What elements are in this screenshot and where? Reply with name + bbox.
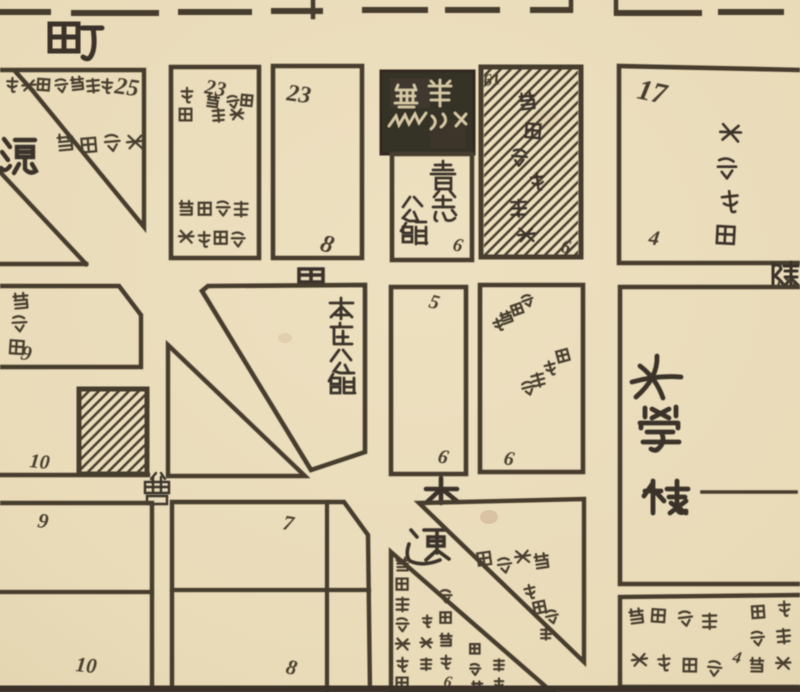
svg-text:10: 10 bbox=[28, 450, 50, 474]
svg-text:23: 23 bbox=[284, 80, 312, 109]
svg-text:10: 10 bbox=[74, 652, 98, 678]
svg-text:61: 61 bbox=[482, 69, 501, 90]
svg-text:25: 25 bbox=[112, 73, 140, 102]
